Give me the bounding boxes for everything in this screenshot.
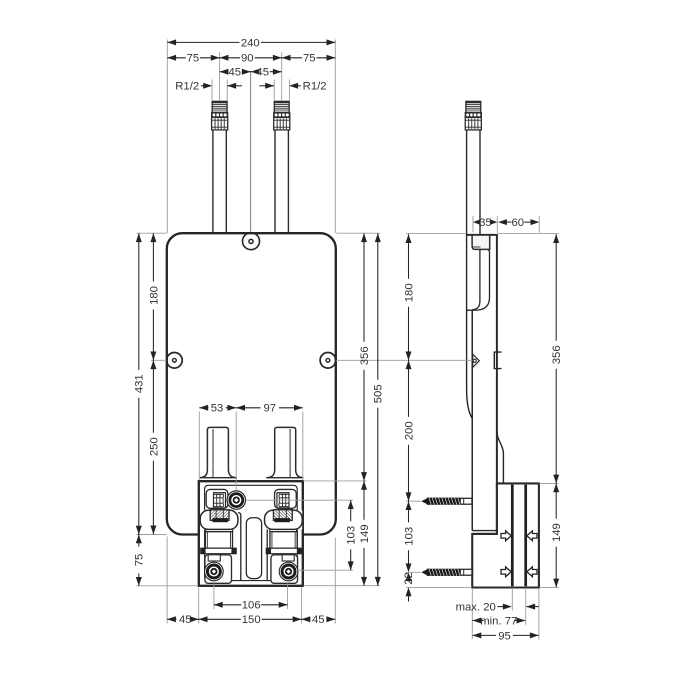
svg-text:R1/2: R1/2 <box>303 81 327 93</box>
svg-text:75: 75 <box>303 53 316 65</box>
svg-text:431: 431 <box>134 374 146 393</box>
svg-text:180: 180 <box>148 286 160 305</box>
svg-text:250: 250 <box>148 437 160 456</box>
svg-text:max. 20: max. 20 <box>456 602 496 614</box>
svg-text:356: 356 <box>551 345 563 364</box>
svg-text:45: 45 <box>179 614 192 626</box>
svg-text:505: 505 <box>373 384 385 403</box>
svg-text:R1/2: R1/2 <box>175 81 199 93</box>
svg-text:60: 60 <box>512 217 525 229</box>
svg-text:53: 53 <box>211 403 224 415</box>
svg-text:356: 356 <box>359 346 371 365</box>
svg-text:95: 95 <box>498 630 511 642</box>
svg-text:90: 90 <box>241 53 254 65</box>
svg-text:149: 149 <box>359 524 371 543</box>
svg-text:45: 45 <box>256 67 269 79</box>
svg-text:min. 77: min. 77 <box>480 615 517 627</box>
svg-text:75: 75 <box>134 554 146 567</box>
svg-text:150: 150 <box>242 614 261 626</box>
svg-text:22: 22 <box>403 572 415 585</box>
svg-text:45: 45 <box>312 614 325 626</box>
svg-text:106: 106 <box>242 600 261 612</box>
svg-text:240: 240 <box>241 37 260 49</box>
svg-text:149: 149 <box>551 523 563 542</box>
svg-text:45: 45 <box>229 67 242 79</box>
svg-text:103: 103 <box>403 527 415 546</box>
svg-text:180: 180 <box>403 283 415 302</box>
svg-text:97: 97 <box>264 403 277 415</box>
svg-text:75: 75 <box>187 53 200 65</box>
svg-text:103: 103 <box>346 526 358 545</box>
svg-text:35: 35 <box>479 217 492 229</box>
svg-text:200: 200 <box>403 421 415 440</box>
